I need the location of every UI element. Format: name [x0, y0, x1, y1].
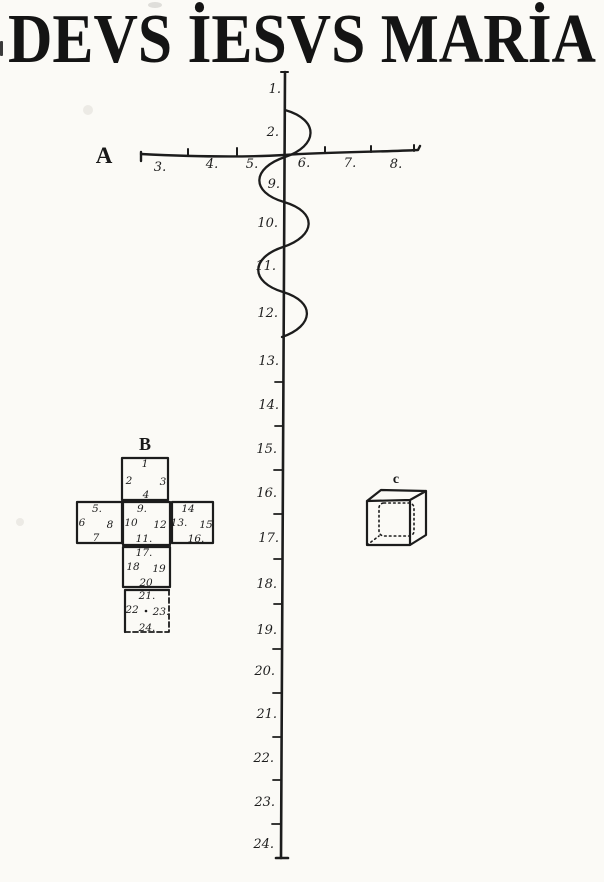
net-label-b: B	[139, 434, 151, 454]
net-edge-number: 5.	[92, 503, 102, 515]
ruler-label: 16.	[256, 486, 277, 501]
net-edge-number: 10	[124, 517, 138, 529]
ruler-label: 13.	[258, 354, 279, 369]
net-edge-number: 14	[181, 503, 194, 515]
ruler-label: 17.	[258, 531, 279, 546]
cube-solid-edges	[367, 490, 426, 545]
net-edge-number: 23.	[152, 606, 170, 618]
ruler-label: 24.	[252, 837, 274, 852]
figure-canvas: DEVS İESVS MARİA A 3. 4. 5. 6. 7. 8. 1. …	[0, 0, 604, 882]
axis-tick-label: 4.	[205, 157, 218, 172]
net-edge-number: 17.	[136, 547, 153, 559]
scan-edge-mark	[0, 41, 3, 56]
ruler-label: 2.	[266, 125, 279, 140]
net-edge-number: 22	[124, 604, 139, 616]
net-center-dot	[145, 610, 148, 613]
net-edge-number: 21.	[138, 590, 156, 602]
cube-hidden-edge	[367, 536, 379, 545]
net-edge-number: 9.	[137, 503, 147, 515]
net-edge-number: 15	[199, 519, 213, 531]
page-title: DEVS İESVS MARİA	[8, 1, 596, 78]
ruler-line	[281, 72, 285, 858]
horizontal-axis: A 3. 4. 5. 6. 7. 8.	[96, 143, 420, 175]
net-edge-number: 11.	[136, 533, 153, 545]
net-edge-number: 18	[126, 561, 140, 573]
ruler-label: 12.	[257, 306, 278, 321]
net-edge-number: 20	[138, 577, 153, 589]
cube-drawing: c	[367, 472, 426, 545]
axis-tick-label: 8.	[390, 157, 402, 172]
ruler-label: 21.	[255, 707, 277, 722]
net-edge-number: 3	[160, 476, 167, 488]
ruler-label: 19.	[256, 623, 277, 638]
ruler-label: 9.	[268, 177, 280, 192]
scan-smudge	[16, 518, 24, 526]
net-edge-number: 2	[125, 475, 133, 487]
ruler-label: 22.	[252, 751, 274, 766]
net-edge-number: 4	[142, 489, 150, 501]
net-edge-number: 6	[79, 517, 86, 529]
cube-net: B 1 2 3 4 5. 6 8 7 9. 10 12 11. 14 13. 1…	[77, 434, 213, 634]
manuscript-page: DEVS İESVS MARİA A 3. 4. 5. 6. 7. 8. 1. …	[0, 0, 604, 882]
net-edge-number: 1	[142, 458, 149, 470]
ruler-label: 23.	[253, 795, 275, 810]
cube-hidden-back-face	[379, 503, 414, 536]
axis-line	[141, 146, 420, 156]
net-edge-number: 12	[153, 519, 167, 531]
axis-tick-label: 5.	[246, 157, 258, 172]
net-edge-number: 13.	[171, 517, 188, 529]
axis-tick-label: 7.	[344, 156, 356, 171]
axis-tick-label: 6.	[298, 156, 310, 171]
ruler-label: 14.	[258, 398, 279, 413]
scan-smudge	[83, 105, 93, 115]
cube-label-c: c	[393, 472, 399, 487]
ruler-label: 20.	[253, 664, 275, 679]
axis-label-a: A	[96, 143, 113, 168]
net-edge-number: 16.	[188, 533, 205, 545]
ruler-label: 18.	[256, 577, 277, 592]
net-edge-number: 24.	[138, 622, 156, 634]
axis-tick-label: 3.	[154, 160, 166, 175]
ruler-label: 15.	[256, 442, 277, 457]
ruler-label: 1.	[269, 82, 281, 97]
net-edge-number: 19	[152, 563, 166, 575]
vertical-ruler: 1. 2. 9. 10. 11. 12. 13. 14. 15. 16. 17.…	[252, 72, 288, 858]
net-edge-number: 7	[93, 532, 100, 544]
net-edge-number: 8	[107, 519, 114, 531]
ruler-label: 10.	[257, 216, 278, 231]
